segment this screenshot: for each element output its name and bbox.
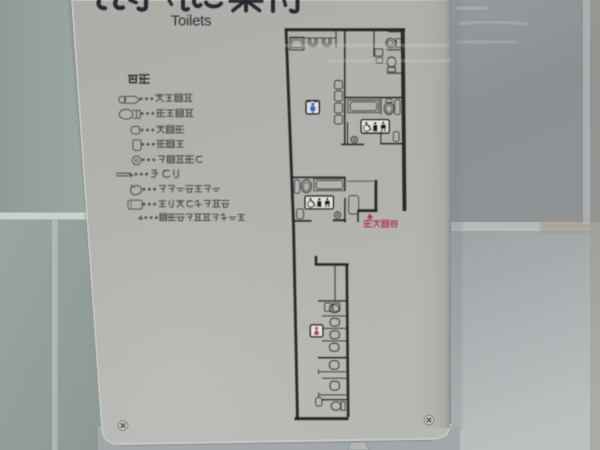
svg-text:Toilets: Toilets	[171, 13, 211, 30]
